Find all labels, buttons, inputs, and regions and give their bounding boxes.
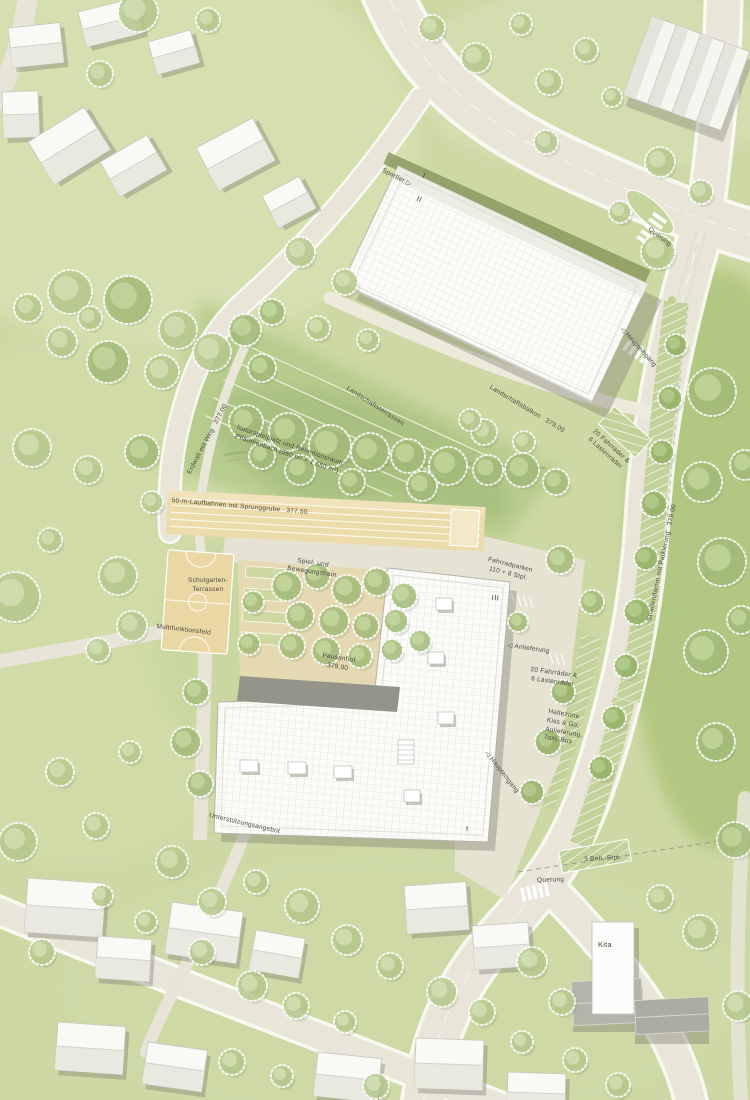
- house: [404, 881, 474, 938]
- sprunggrube: [450, 509, 480, 546]
- house: [95, 936, 156, 987]
- label-schulgarten-terrassen: Schulgarten- Terrassen: [188, 577, 228, 595]
- roof-stairs: [398, 740, 414, 764]
- site-plan-canvas: [0, 0, 750, 1100]
- house: [506, 1072, 570, 1100]
- storey-marker-schule-iii: III: [491, 593, 499, 603]
- house: [54, 1022, 130, 1080]
- site-plan: Sportler ▷ Querung ◁ Haupteingang Landsc…: [0, 0, 750, 1100]
- tree: [698, 538, 747, 588]
- house: [2, 91, 44, 143]
- label-kita: Kita: [598, 940, 612, 950]
- house: [8, 22, 68, 73]
- house: [414, 1038, 488, 1095]
- tree: [104, 276, 153, 326]
- label-haltezone: Haltezone Kiss & Go, Anlieferung, Taxi, …: [543, 708, 586, 749]
- tree: [688, 368, 737, 418]
- multifunction-court: [161, 550, 234, 654]
- label-querung-sued: Querung: [537, 876, 564, 886]
- house: [141, 1042, 211, 1097]
- storey-marker-schule-i: I: [466, 824, 469, 833]
